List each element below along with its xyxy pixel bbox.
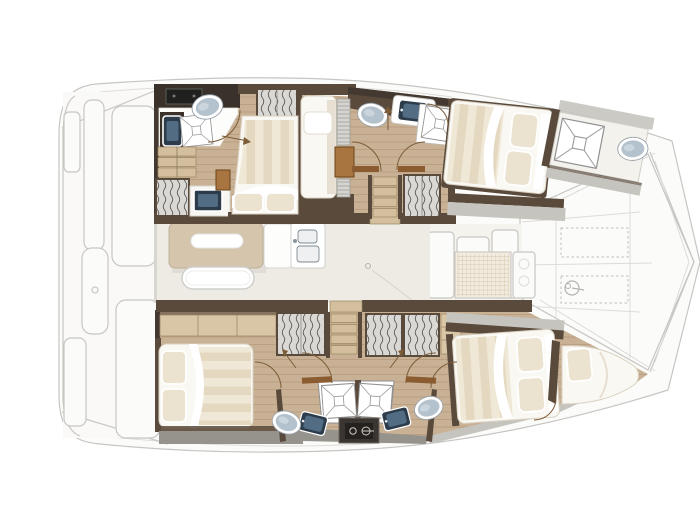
- pillow: [162, 389, 186, 422]
- double-bed: [441, 98, 556, 199]
- galley-sink: [291, 223, 325, 268]
- pillow: [566, 348, 593, 382]
- cabinet: [335, 147, 354, 177]
- door-leaf: [352, 166, 379, 172]
- pillow: [266, 193, 295, 212]
- double-bed: [159, 344, 253, 428]
- stairs: [326, 312, 362, 358]
- pillow: [517, 377, 545, 413]
- cockpit-post: [84, 100, 104, 250]
- table-centerpiece: [191, 234, 243, 248]
- pillow: [162, 351, 186, 384]
- floor-plan-stage: Catamaran interior layout plan — deck pl…: [0, 0, 700, 525]
- sideboard: [160, 315, 276, 336]
- pillow: [504, 150, 533, 187]
- bench-seat: [182, 267, 254, 289]
- cockpit-bench-top: [112, 106, 156, 266]
- wardrobe: [277, 313, 325, 355]
- saloon: [154, 223, 430, 303]
- helm-seat: [82, 248, 108, 334]
- wardrobe-head: [257, 89, 297, 120]
- cockpit-bench-bottom: [116, 300, 160, 438]
- cockpit-counter: [428, 232, 454, 298]
- shower: [554, 118, 604, 168]
- stairs: [158, 147, 196, 177]
- pillow: [234, 193, 263, 212]
- wardrobe: [404, 175, 440, 217]
- wardrobe: [404, 314, 439, 356]
- double-bed: [446, 327, 560, 426]
- wardrobe: [366, 314, 402, 356]
- shower: [321, 383, 356, 418]
- aft-cockpit: [62, 88, 168, 444]
- single-berth: [301, 96, 354, 198]
- pillow: [509, 112, 538, 149]
- pillow: [304, 112, 332, 134]
- forward-cockpit: [428, 224, 535, 303]
- stair-landing: [330, 301, 362, 312]
- catamaran-floor-plan: Catamaran interior layout plan — deck pl…: [0, 0, 700, 525]
- door-leaf: [398, 166, 425, 172]
- wardrobe: [156, 179, 189, 216]
- power-panel: [339, 418, 379, 443]
- refrigerator: [264, 224, 292, 268]
- pillow: [516, 337, 544, 373]
- nightstand: [216, 170, 230, 190]
